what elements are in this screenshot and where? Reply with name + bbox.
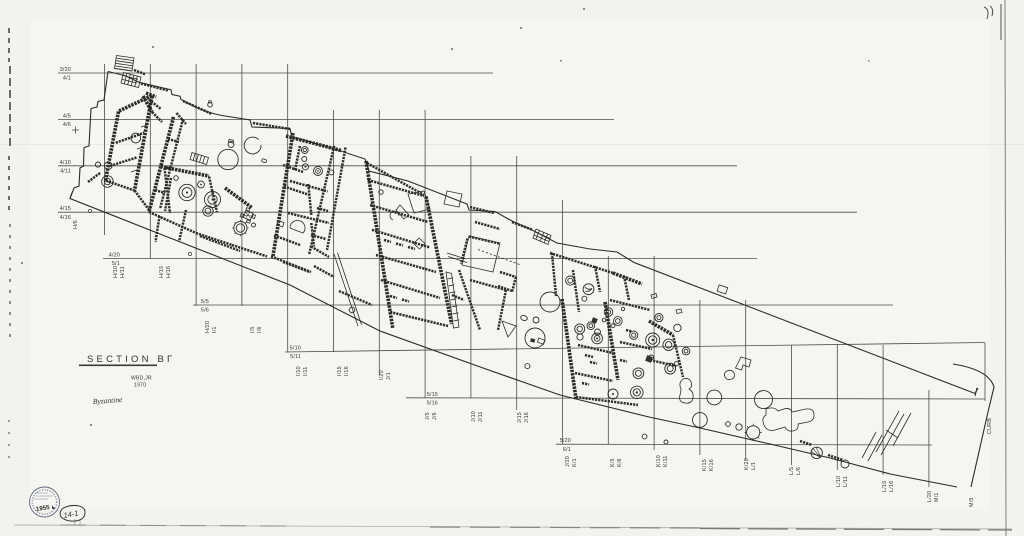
svg-text:5/15: 5/15 bbox=[427, 392, 438, 398]
svg-text:M/5: M/5 bbox=[969, 497, 975, 507]
svg-text:I/15: I/15 bbox=[337, 366, 343, 376]
svg-text:H/6: H/6 bbox=[73, 220, 79, 229]
svg-text:J/20: J/20 bbox=[565, 456, 571, 467]
svg-text:SECTION BΓ: SECTION BΓ bbox=[87, 354, 175, 365]
svg-text:4/15: 4/15 bbox=[60, 206, 71, 212]
svg-text:K/16: K/16 bbox=[709, 459, 715, 471]
svg-text:1970: 1970 bbox=[134, 383, 146, 389]
svg-text:4/20: 4/20 bbox=[109, 253, 120, 259]
svg-text:5/10: 5/10 bbox=[290, 345, 301, 351]
svg-text:J/1: J/1 bbox=[386, 372, 392, 380]
svg-text:J/16: J/16 bbox=[524, 412, 530, 423]
svg-text:I/16: I/16 bbox=[344, 366, 350, 376]
svg-text:4/16: 4/16 bbox=[60, 215, 71, 221]
svg-text:H/16: H/16 bbox=[166, 266, 172, 278]
svg-text:5/6: 5/6 bbox=[201, 308, 209, 314]
svg-text:6/1: 6/1 bbox=[563, 447, 571, 453]
svg-text:4/10: 4/10 bbox=[60, 160, 71, 166]
svg-text:5/16: 5/16 bbox=[427, 400, 438, 406]
svg-text:L/16: L/16 bbox=[889, 481, 895, 492]
svg-text:H/15: H/15 bbox=[159, 266, 165, 278]
svg-text:H/20: H/20 bbox=[205, 321, 211, 333]
svg-text:5/20: 5/20 bbox=[560, 438, 571, 444]
svg-text:J/11: J/11 bbox=[478, 411, 484, 422]
svg-text:L/5: L/5 bbox=[789, 467, 795, 475]
svg-text:L/20: L/20 bbox=[927, 491, 933, 502]
svg-text:K/5: K/5 bbox=[610, 458, 616, 467]
svg-text:L/15: L/15 bbox=[882, 481, 888, 492]
svg-text:I/6: I/6 bbox=[257, 326, 263, 333]
svg-text:J/15: J/15 bbox=[517, 412, 523, 423]
svg-text:4/6: 4/6 bbox=[63, 122, 71, 128]
svg-text:WBD,JR: WBD,JR bbox=[131, 376, 152, 382]
svg-text:I/11: I/11 bbox=[303, 367, 309, 376]
svg-text:4/1: 4/1 bbox=[63, 76, 71, 82]
svg-text:H/11: H/11 bbox=[120, 266, 126, 278]
svg-text:L/10: L/10 bbox=[836, 476, 842, 487]
svg-text:4/11: 4/11 bbox=[60, 168, 71, 174]
svg-text:5/11: 5/11 bbox=[290, 354, 301, 360]
svg-text:K/1: K/1 bbox=[572, 458, 578, 467]
svg-text:K/15: K/15 bbox=[702, 459, 708, 471]
svg-text:L/6: L/6 bbox=[796, 467, 802, 475]
svg-text:CURB: CURB bbox=[987, 418, 993, 434]
svg-text:J/5: J/5 bbox=[425, 412, 431, 420]
svg-text:K/11: K/11 bbox=[663, 456, 669, 468]
svg-text:I/5: I/5 bbox=[250, 326, 256, 333]
svg-text:3/20: 3/20 bbox=[60, 67, 71, 73]
svg-text:L/11: L/11 bbox=[843, 476, 849, 487]
svg-text:I/10: I/10 bbox=[296, 366, 302, 376]
svg-text:K/10: K/10 bbox=[656, 455, 662, 467]
svg-text:5/5: 5/5 bbox=[201, 299, 209, 305]
svg-text:J/6: J/6 bbox=[432, 412, 438, 420]
svg-text:H/10: H/10 bbox=[113, 266, 119, 278]
svg-text:K/20: K/20 bbox=[744, 458, 750, 470]
svg-text:I/20: I/20 bbox=[379, 370, 385, 380]
svg-text:I/1: I/1 bbox=[212, 326, 218, 333]
svg-text:K/6: K/6 bbox=[617, 458, 623, 467]
svg-text:4/5: 4/5 bbox=[63, 113, 71, 119]
svg-text:J/10: J/10 bbox=[471, 411, 477, 422]
svg-text:M/1: M/1 bbox=[934, 492, 940, 502]
svg-text:L/1: L/1 bbox=[751, 462, 757, 470]
